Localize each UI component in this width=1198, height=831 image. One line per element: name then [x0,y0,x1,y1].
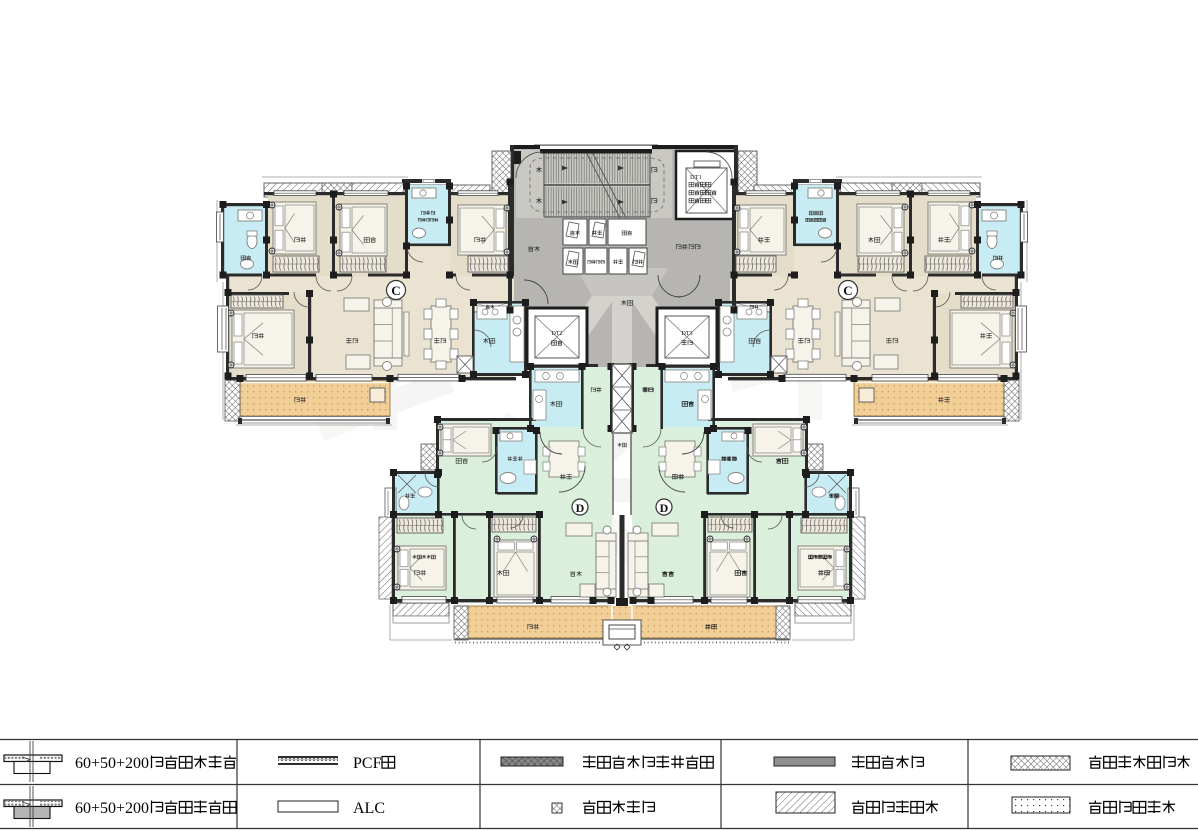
svg-text:C: C [391,283,400,298]
svg-text:60+50+200: 60+50+200 [75,800,149,817]
svg-text:D: D [660,501,669,515]
svg-text:PCF: PCF [353,755,382,772]
svg-text:DT2: DT2 [552,331,563,337]
svg-text:D: D [576,501,585,515]
svg-text:ALC: ALC [353,800,385,817]
svg-text:C: C [843,283,852,298]
svg-text:60+50+200: 60+50+200 [75,755,149,772]
svg-text:DT1: DT1 [690,174,702,181]
svg-text:DT3: DT3 [682,331,693,337]
